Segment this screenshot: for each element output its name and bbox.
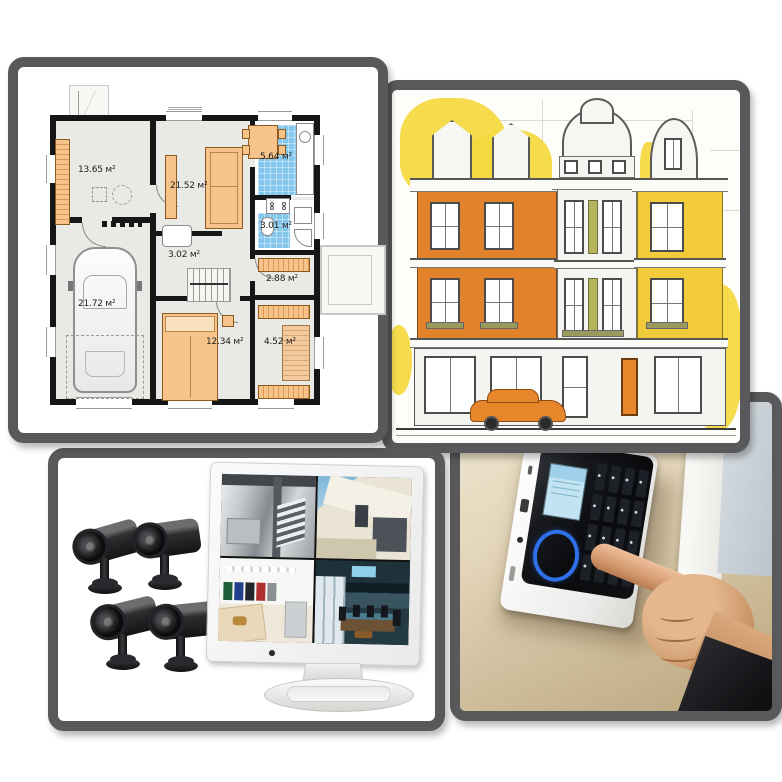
lcd-screen bbox=[542, 463, 588, 521]
glass-wall bbox=[372, 517, 407, 552]
appliance-outline bbox=[92, 187, 107, 202]
flower-box bbox=[480, 322, 518, 329]
stove bbox=[266, 198, 290, 214]
wardrobe-furniture bbox=[55, 139, 70, 225]
camera-base bbox=[106, 658, 140, 670]
alarm-keypad-device bbox=[499, 435, 659, 630]
window bbox=[355, 505, 368, 527]
flower-box bbox=[426, 322, 464, 329]
entry-door bbox=[562, 356, 588, 418]
radiator bbox=[258, 258, 310, 272]
window bbox=[602, 200, 622, 254]
camera-base bbox=[148, 578, 182, 590]
wardrobe-shelves bbox=[282, 325, 310, 381]
terrace-outline bbox=[328, 255, 372, 305]
chair bbox=[381, 606, 388, 618]
feed-detail bbox=[354, 631, 372, 638]
orange-door bbox=[621, 358, 638, 416]
counter bbox=[284, 601, 307, 637]
chair bbox=[393, 610, 401, 626]
shoe-rack bbox=[102, 221, 142, 227]
terrace bbox=[316, 538, 376, 559]
window bbox=[258, 111, 292, 121]
blue-ring-button bbox=[529, 526, 583, 585]
sink bbox=[299, 131, 311, 143]
yellow-tree bbox=[392, 325, 412, 395]
chair bbox=[278, 129, 286, 139]
wall-segment bbox=[150, 213, 156, 405]
stair-arrow bbox=[190, 283, 228, 285]
finger-fold bbox=[660, 612, 694, 622]
power-button-icon bbox=[269, 650, 275, 656]
floor-plan: 13.65 м² 21.52 м² 5.64 м² 3.01 м² 3.02 м… bbox=[18, 67, 378, 433]
feed-interior-staircase bbox=[220, 474, 316, 558]
chair bbox=[242, 145, 250, 155]
cctv-monitor bbox=[206, 462, 424, 667]
room-label: 13.65 м² bbox=[78, 165, 115, 175]
street-line bbox=[396, 428, 736, 430]
olive-shutter bbox=[588, 278, 598, 332]
washing-machine bbox=[294, 207, 312, 224]
cornice bbox=[632, 178, 728, 192]
pencil-line bbox=[710, 150, 740, 151]
feed-house-exterior bbox=[316, 476, 412, 560]
clothes-rack bbox=[223, 582, 232, 600]
window bbox=[46, 245, 56, 275]
clothes-rack bbox=[245, 582, 254, 600]
window bbox=[430, 202, 460, 250]
camera-base bbox=[88, 582, 122, 594]
room-label: 3.02 м² bbox=[168, 250, 200, 260]
nightstand bbox=[222, 315, 234, 327]
storefront-window bbox=[424, 356, 476, 414]
window bbox=[650, 202, 684, 252]
skylight bbox=[352, 566, 376, 578]
panel-floor-plan: 13.65 м² 21.52 м² 5.64 м² 3.01 м² 3.02 м… bbox=[8, 57, 388, 443]
finger-fold bbox=[660, 652, 696, 662]
chair bbox=[242, 129, 250, 139]
clothes-rack bbox=[234, 582, 243, 600]
cornice bbox=[410, 338, 728, 348]
storefront-window bbox=[654, 356, 702, 414]
chair bbox=[353, 605, 360, 617]
cornice bbox=[410, 258, 562, 268]
monitor-stand-base bbox=[264, 678, 414, 712]
staircase bbox=[187, 268, 231, 302]
ceiling-lights bbox=[226, 566, 296, 573]
roof-crown bbox=[580, 98, 614, 124]
camera-base bbox=[164, 660, 198, 672]
room-label: 12.34 м² bbox=[206, 337, 243, 347]
door-swing bbox=[78, 91, 100, 117]
cornice bbox=[410, 178, 562, 192]
staircase bbox=[276, 497, 305, 547]
sofa-furniture bbox=[205, 147, 243, 229]
cornice bbox=[554, 260, 640, 269]
radiator bbox=[258, 305, 310, 319]
window bbox=[166, 111, 202, 121]
clothes-rack bbox=[256, 583, 265, 601]
driveway-outline bbox=[66, 335, 144, 399]
window bbox=[314, 135, 324, 165]
room-label: 5.64 м² bbox=[260, 152, 292, 162]
bed-furniture bbox=[162, 313, 218, 401]
feed-detail bbox=[222, 474, 316, 487]
panel-facade-sketch bbox=[382, 80, 750, 453]
car-mirror bbox=[137, 281, 142, 291]
window bbox=[602, 278, 622, 332]
appliance-outline bbox=[112, 185, 132, 205]
finger-fold bbox=[656, 632, 696, 642]
flower-box bbox=[646, 322, 688, 329]
dormer-window bbox=[664, 138, 682, 170]
car-mirror bbox=[68, 281, 73, 291]
window bbox=[430, 278, 460, 326]
attic-window bbox=[564, 160, 578, 174]
wall-segment bbox=[255, 250, 320, 255]
room-label: 21.72 м² bbox=[78, 299, 115, 309]
lintel bbox=[168, 107, 202, 110]
wall-segment bbox=[150, 115, 156, 185]
bath-fixture bbox=[162, 225, 192, 247]
chair bbox=[367, 605, 374, 617]
room-label: 2.88 м² bbox=[266, 274, 298, 284]
window bbox=[484, 278, 514, 326]
wall-segment bbox=[240, 296, 250, 301]
panel-cctv-kit bbox=[48, 448, 445, 731]
cornice bbox=[634, 258, 726, 268]
attic-window bbox=[612, 160, 626, 174]
window bbox=[484, 202, 514, 250]
feed-clothing-store bbox=[218, 558, 314, 643]
cornice bbox=[552, 178, 642, 190]
clothes-rack bbox=[267, 583, 276, 601]
feed-conference-room bbox=[314, 560, 410, 645]
facade-sketch bbox=[392, 90, 740, 443]
wall-segment bbox=[250, 167, 255, 259]
car-wheel bbox=[484, 416, 499, 431]
window bbox=[46, 327, 56, 357]
cctv-photo bbox=[58, 458, 435, 721]
window bbox=[314, 213, 324, 239]
security-collage: 13.65 м² 21.52 м² 5.64 м² 3.01 м² 3.02 м… bbox=[0, 0, 782, 782]
window bbox=[314, 337, 324, 369]
room-label: 4.52 м² bbox=[264, 337, 296, 347]
handbag bbox=[233, 616, 247, 625]
window bbox=[564, 200, 584, 254]
car-wheel bbox=[538, 416, 553, 431]
monitor-screen bbox=[218, 474, 412, 645]
feed-detail bbox=[226, 518, 261, 545]
chair bbox=[339, 607, 346, 621]
attic-window bbox=[588, 160, 602, 174]
street-line bbox=[396, 435, 736, 436]
monitor-buttons bbox=[269, 648, 369, 660]
room-label: 3.01 м² bbox=[260, 221, 292, 231]
radiator bbox=[258, 385, 310, 399]
flower-box bbox=[562, 330, 624, 337]
window bbox=[650, 278, 684, 328]
window bbox=[564, 278, 584, 332]
wall-segment bbox=[255, 295, 320, 300]
olive-shutter bbox=[588, 200, 598, 254]
room-label: 21.52 м² bbox=[170, 181, 207, 191]
